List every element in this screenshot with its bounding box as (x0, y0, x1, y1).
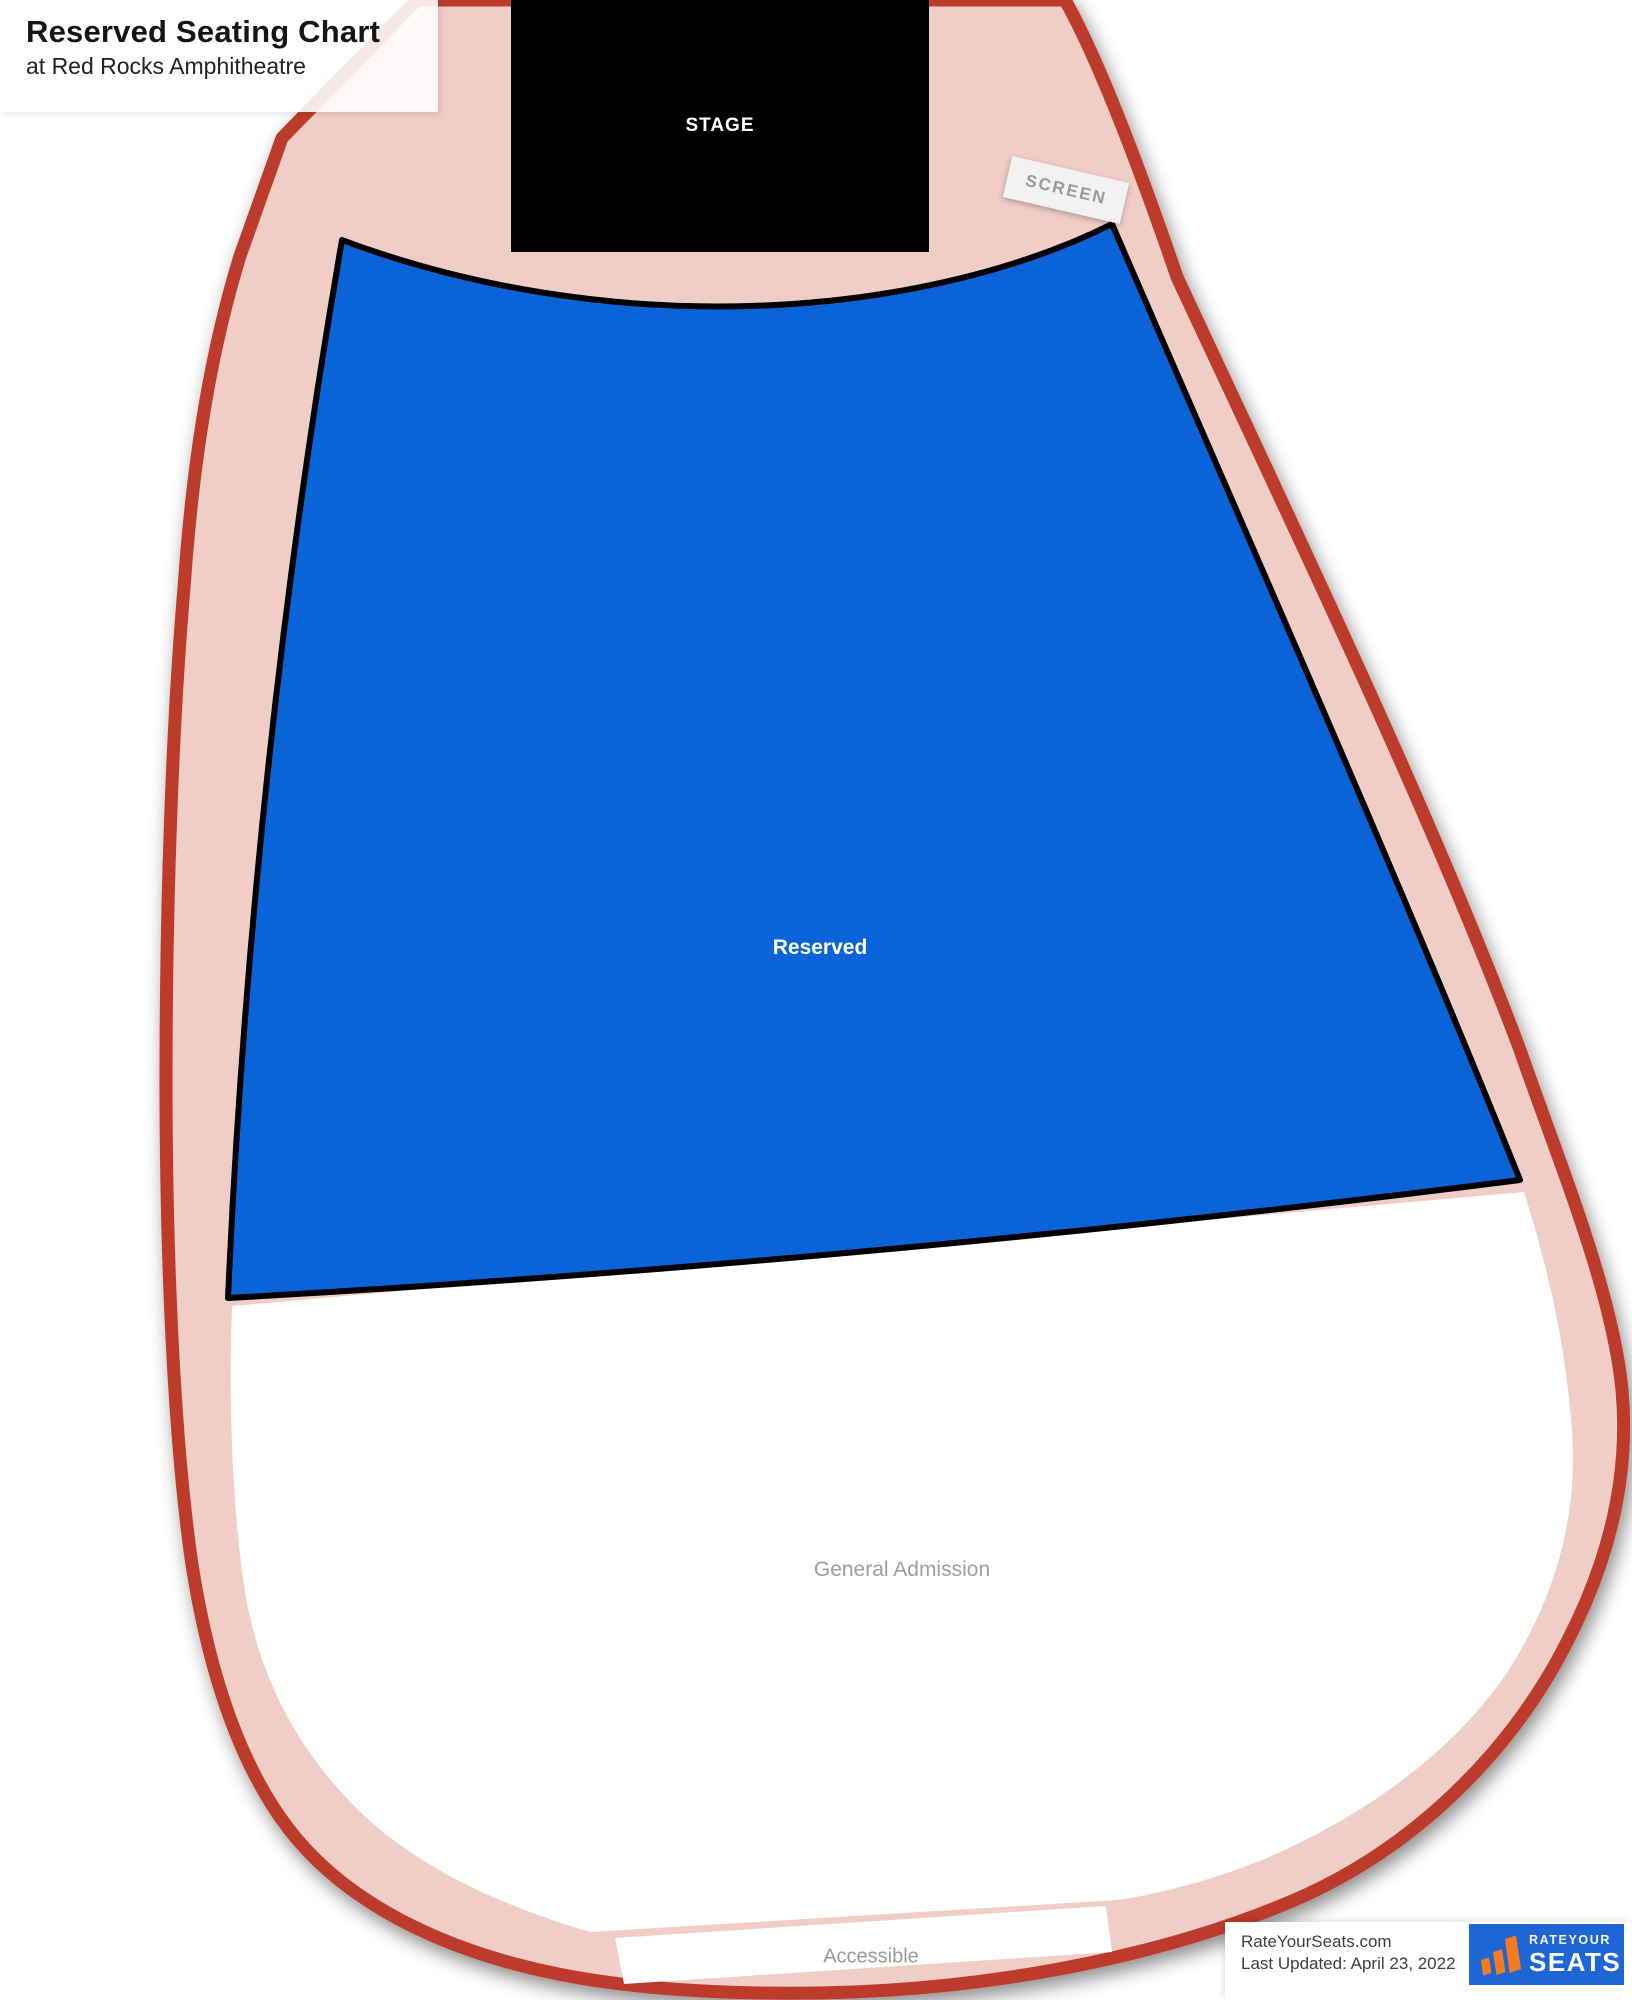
seating-chart-canvas: STAGE SCREEN Reserved General Admission … (0, 0, 1632, 2000)
stage-label: STAGE (685, 115, 754, 137)
accessible-label: Accessible (823, 1946, 919, 1969)
bar-chart-icon (1478, 1932, 1524, 1978)
logo-brand-suffix: com (1623, 1952, 1632, 1971)
venue-map (0, 0, 1632, 2000)
general-admission-label: General Admission (814, 1558, 990, 1582)
page-subtitle: at Red Rocks Amphitheatre (26, 53, 438, 80)
footer: RateYourSeats.com Last Updated: April 23… (1225, 1922, 1632, 2000)
site-name: RateYourSeats.com (1241, 1931, 1456, 1953)
rateyourseats-logo: RATEYOUR SEATS com (1469, 1924, 1624, 1985)
page-title: Reserved Seating Chart (26, 14, 438, 50)
logo-brand-main: SEATS (1529, 1949, 1621, 1975)
logo-text: RATEYOUR SEATS com (1529, 1934, 1632, 1975)
reserved-area[interactable] (228, 224, 1520, 1298)
footer-text: RateYourSeats.com Last Updated: April 23… (1241, 1931, 1456, 1975)
last-updated: Last Updated: April 23, 2022 (1241, 1953, 1456, 1975)
screen-label: SCREEN (1023, 171, 1108, 209)
title-card: Reserved Seating Chart at Red Rocks Amph… (0, 0, 438, 112)
logo-brand-top: RATEYOUR (1529, 1934, 1632, 1947)
reserved-label: Reserved (773, 936, 868, 960)
stage: STAGE (511, 0, 929, 252)
